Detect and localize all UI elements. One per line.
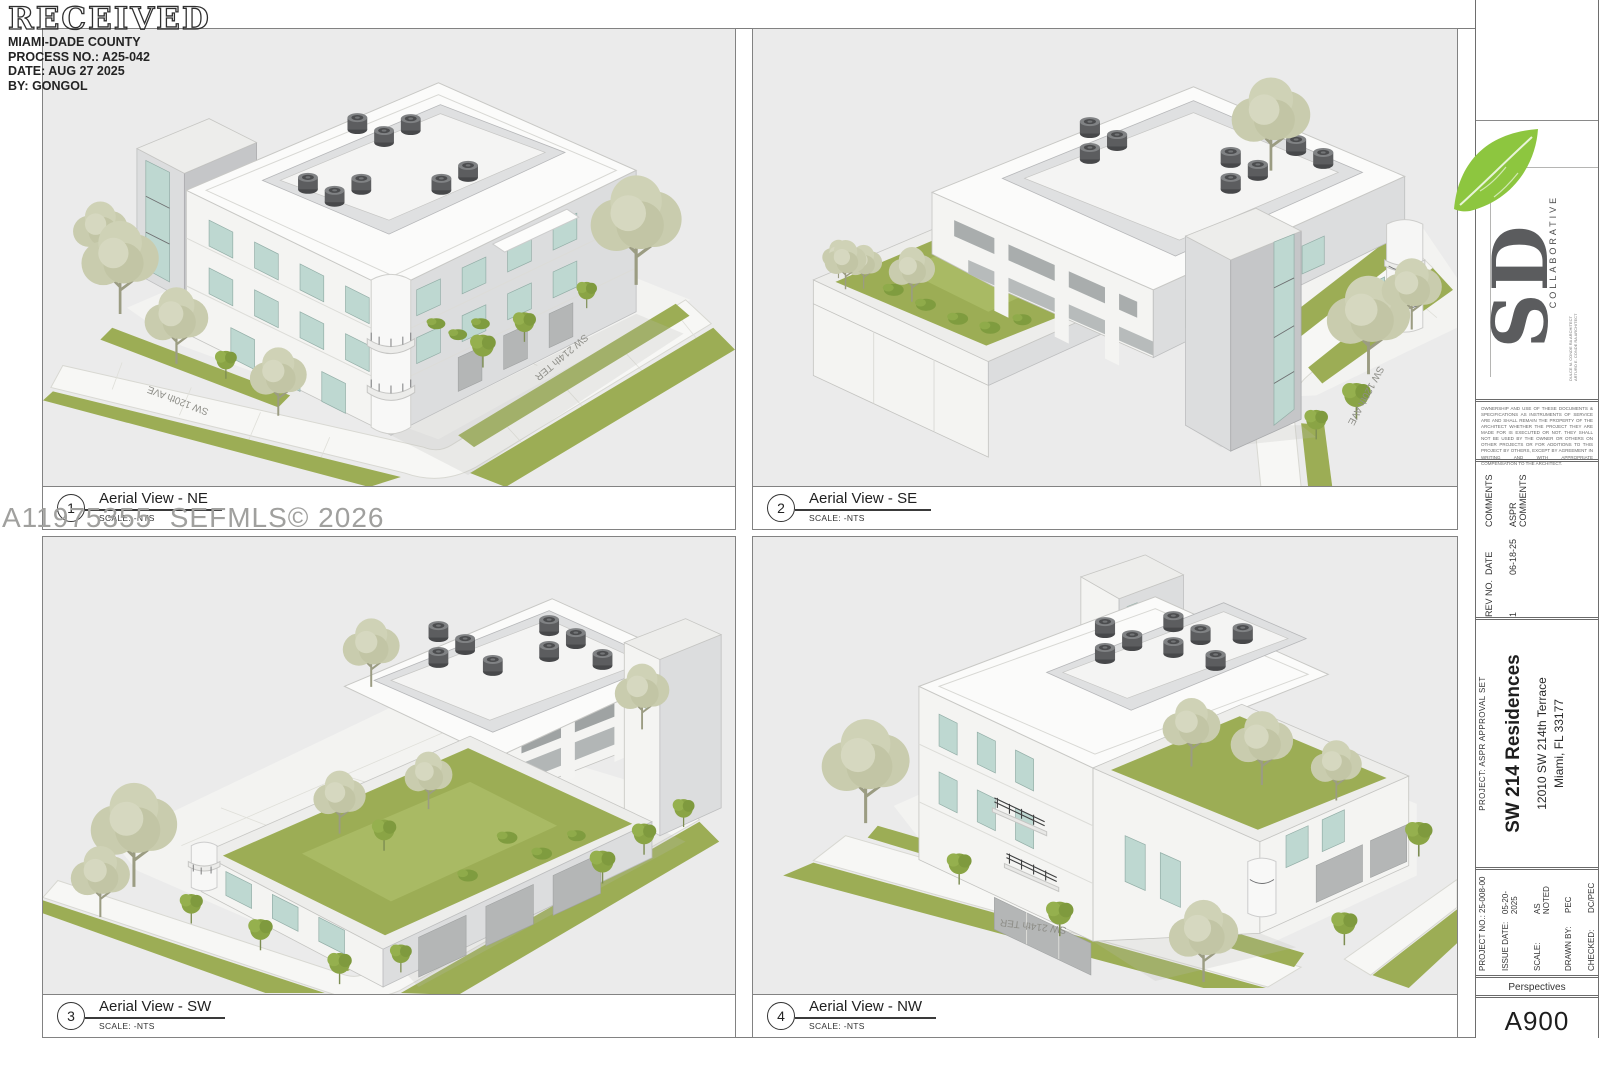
project-no-label: PROJECT NO.: xyxy=(1478,913,1487,971)
sheet-title-text: Perspectives xyxy=(1476,978,1598,993)
issue-date-value: 05-20-2025 xyxy=(1501,874,1519,914)
ownership-disclaimer: OWNERSHIP AND USE OF THESE DOCUMENTS & S… xyxy=(1476,399,1598,459)
issue-date-label: ISSUE DATE: xyxy=(1501,914,1519,971)
panel-number: 2 xyxy=(767,494,795,522)
rev-no-label: REV NO. xyxy=(1484,575,1494,617)
titleblock-blank-box xyxy=(1476,0,1598,121)
stamp-agency: MIAMI-DADE COUNTY xyxy=(8,36,211,50)
aerial-render-ne: SW 120th AVE SW 214th TER xyxy=(43,29,735,487)
project-no-value: 25-008-00 xyxy=(1478,877,1487,913)
rev-no-value: 1 xyxy=(1508,575,1518,617)
panel-scale: SCALE: -NTS xyxy=(809,1021,936,1031)
checked-value: DC/PEC xyxy=(1587,883,1596,913)
panel-scale: SCALE: -NTS xyxy=(809,513,931,523)
received-stamp-title: RECEIVED xyxy=(8,4,211,35)
received-stamp: RECEIVED MIAMI-DADE COUNTY PROCESS NO.: … xyxy=(8,4,211,93)
rev-comments-value: ASPR COMMENTS xyxy=(1508,462,1528,527)
panel-scale: SCALE: -NTS xyxy=(99,1021,225,1031)
panel-title: Aerial View - NW xyxy=(795,998,936,1019)
panel-title: Aerial View - SE xyxy=(795,490,931,511)
panel-title: Aerial View - SW xyxy=(85,998,225,1019)
project-set-label: PROJECT: ASPR APPROVAL SET xyxy=(1478,676,1487,810)
aerial-render-nw: SW 214th TER xyxy=(753,537,1457,995)
checked-label: CHECKED: xyxy=(1587,913,1596,971)
stamp-by: BY: GONGOL xyxy=(8,80,211,94)
revision-table: REV NO. 1 DATE 06-18-25 COMMENTS ASPR CO… xyxy=(1476,459,1598,617)
project-name: SW 214 Residences xyxy=(1503,654,1525,832)
rev-date-label: DATE xyxy=(1484,527,1494,575)
architect-registration-lines: DULCE M. CONDE RA ARCHITECT ARTURO E. CO… xyxy=(1568,151,1580,381)
panel-sw-label: 3 Aerial View - SW SCALE: -NTS xyxy=(43,994,735,1037)
firm-logo: SD COLLABORATIVE DULCE M. CONDE RA ARCHI… xyxy=(1476,121,1598,399)
panel-nw-label: 4 Aerial View - NW SCALE: -NTS xyxy=(753,994,1457,1037)
logo-collaborative-text: COLLABORATIVE xyxy=(1548,169,1562,334)
sheet-number: A900 xyxy=(1476,998,1598,1037)
sheet-number-cell: A900 xyxy=(1476,995,1598,1038)
drawn-by-label: DRAWN BY: xyxy=(1564,913,1573,971)
architect-line-2: ARTURO E. CONDE RA ARCHITECT xyxy=(1573,151,1578,381)
panel-se: SW 120th AVE 2 Aerial View - SE SCALE: -… xyxy=(752,28,1458,530)
project-address: 12010 SW 214th Terrace xyxy=(1535,677,1549,810)
scale-value: AS NOTED xyxy=(1533,874,1551,914)
drawn-by-value: PEC xyxy=(1564,897,1573,913)
title-block: SD COLLABORATIVE DULCE M. CONDE RA ARCHI… xyxy=(1475,0,1599,1038)
mls-watermark: A11975355 SEFMLS© 2026 xyxy=(2,502,384,534)
scale-label: SCALE: xyxy=(1533,914,1551,971)
panel-nw: SW 214th TER 4 Aerial View - NW SCALE: -… xyxy=(752,536,1458,1038)
panel-number: 4 xyxy=(767,1002,795,1030)
panel-ne: SW 120th AVE SW 214th TER 1 Aerial View … xyxy=(42,28,736,530)
aerial-render-sw xyxy=(43,537,735,995)
disclaimer-text: OWNERSHIP AND USE OF THESE DOCUMENTS & S… xyxy=(1481,406,1593,467)
panel-sw: 3 Aerial View - SW SCALE: -NTS xyxy=(42,536,736,1038)
aerial-render-se: SW 120th AVE xyxy=(753,29,1457,487)
panel-number: 3 xyxy=(57,1002,85,1030)
panel-se-label: 2 Aerial View - SE SCALE: -NTS xyxy=(753,486,1457,529)
project-city: Miami, FL 33177 xyxy=(1552,699,1566,788)
sheet-title: Perspectives xyxy=(1476,975,1598,995)
project-block: PROJECT: ASPR APPROVAL SET SW 214 Reside… xyxy=(1476,617,1598,867)
stamp-date: DATE: AUG 27 2025 xyxy=(8,65,211,79)
leaf-icon xyxy=(1440,117,1550,217)
stamp-process-no: PROCESS NO.: A25-042 xyxy=(8,51,211,65)
sheet-info-table: PROJECT NO.:25-008-00 ISSUE DATE:05-20-2… xyxy=(1476,867,1598,975)
rev-comments-label: COMMENTS xyxy=(1484,462,1494,527)
rev-date-value: 06-18-25 xyxy=(1508,527,1518,575)
